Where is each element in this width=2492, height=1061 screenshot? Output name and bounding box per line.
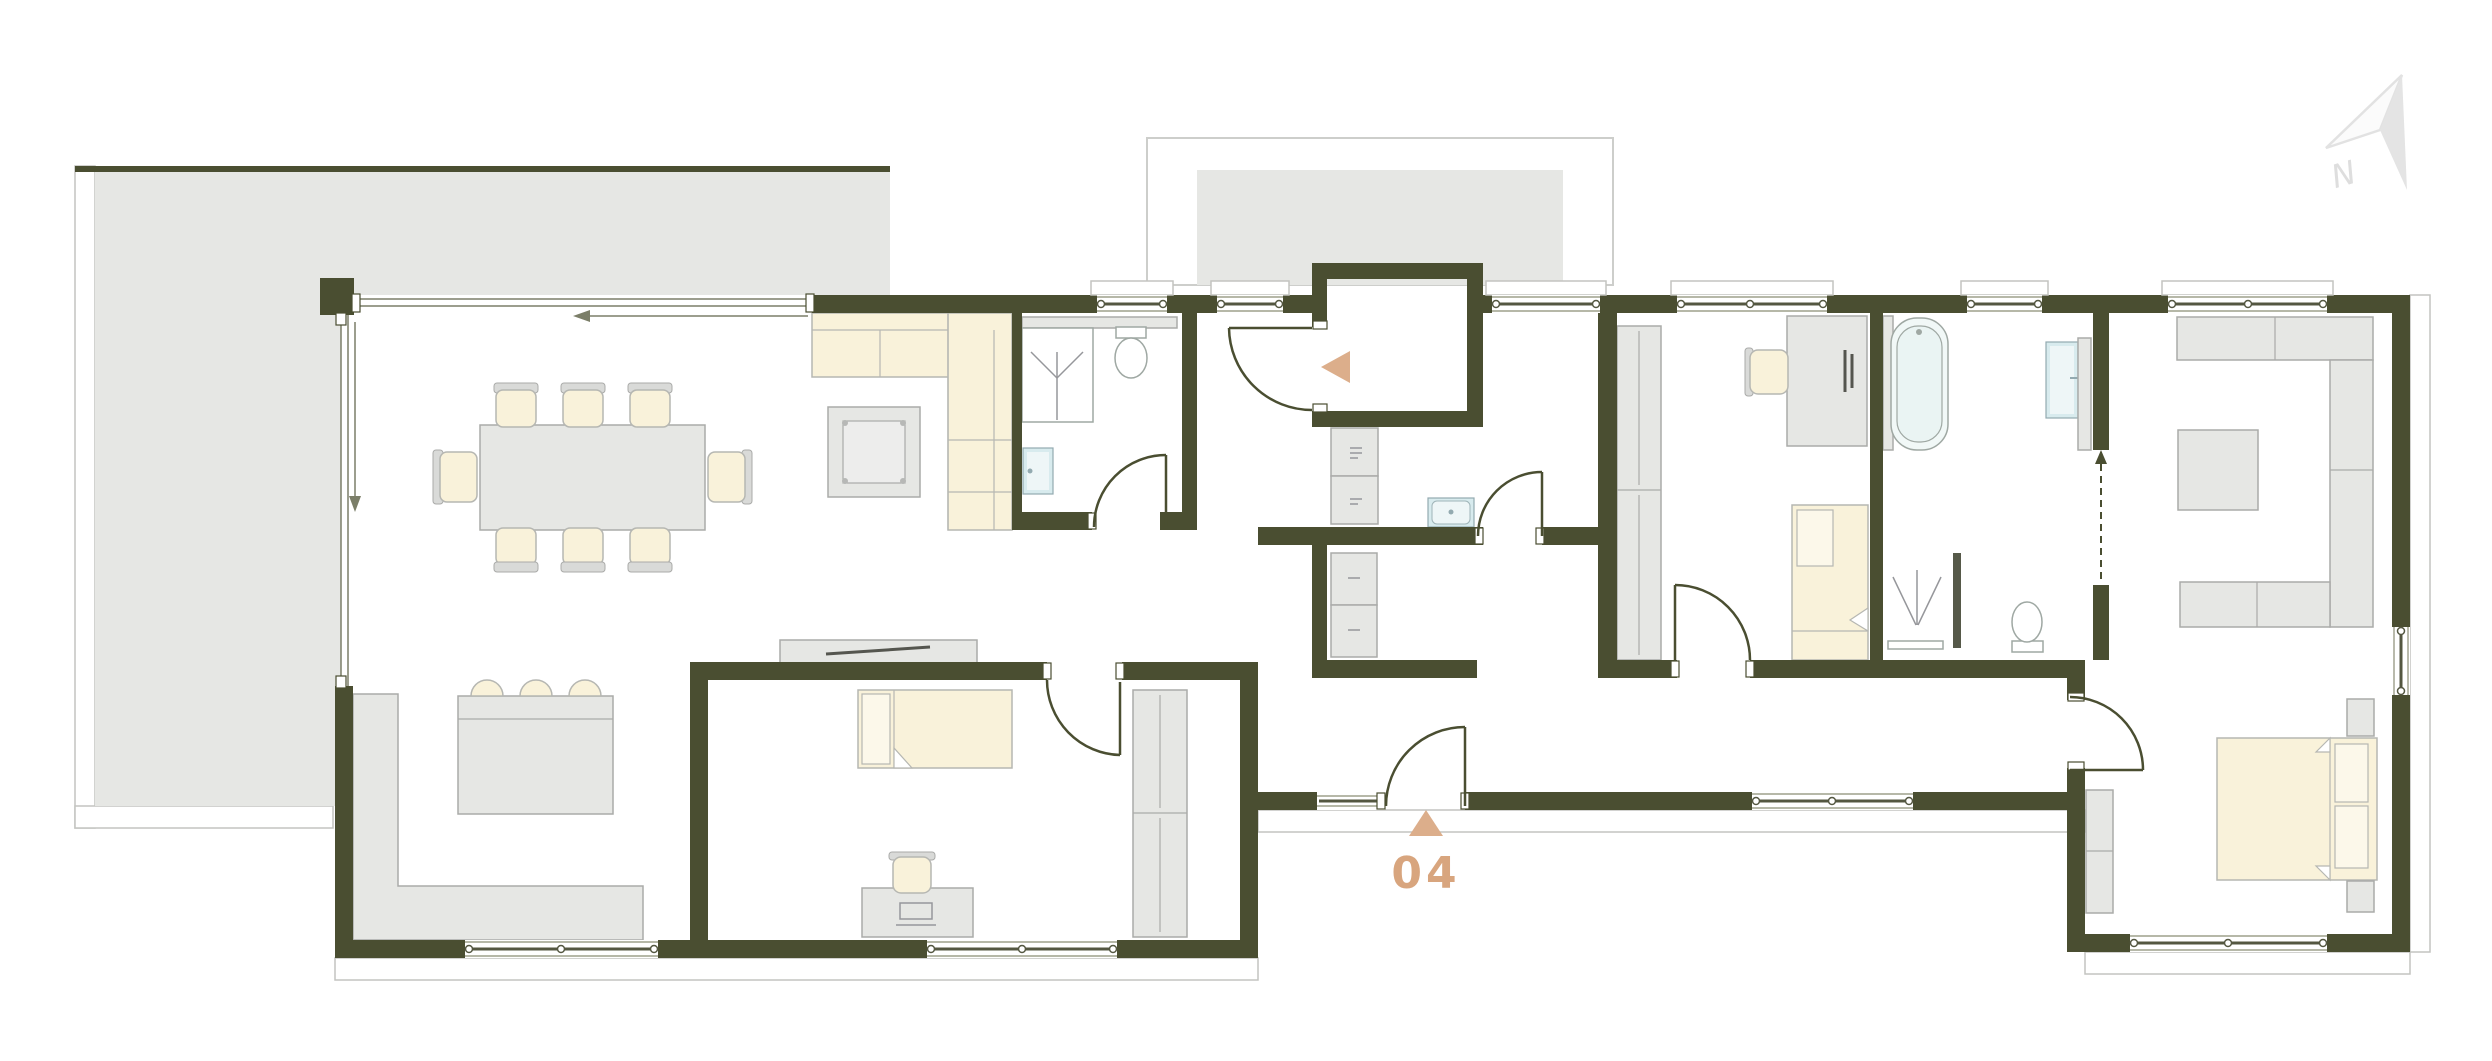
outer-sill-strip — [2085, 952, 2410, 974]
shower-room — [1022, 317, 1177, 494]
unit-number-label: 04 — [1391, 848, 1460, 899]
desk-chair — [1745, 348, 1788, 396]
bar-stool — [520, 680, 552, 696]
entrance-door — [1377, 727, 1469, 809]
door — [1671, 585, 1754, 677]
master-bedroom-suite — [2086, 317, 2377, 913]
outer-sill-strip — [335, 958, 1258, 980]
dining-chair — [628, 528, 672, 572]
window — [465, 940, 658, 958]
dining-chair — [433, 450, 477, 504]
terrace-edge-strip — [75, 166, 95, 828]
dining-chair — [561, 528, 605, 572]
desk — [1787, 316, 1867, 446]
dryer — [1331, 476, 1378, 524]
doors — [1043, 321, 2143, 809]
coffee-table — [828, 407, 920, 497]
outer-sill-strip — [1258, 810, 2085, 832]
window — [1492, 295, 1600, 313]
terrace-edge-strip — [75, 806, 333, 828]
utility-sink — [1428, 498, 1474, 527]
cabinet — [1331, 553, 1377, 657]
desk-chair — [889, 852, 935, 893]
terrace-top-edge — [75, 166, 890, 172]
dining-chair — [708, 450, 752, 504]
outer-sill-strip — [2410, 295, 2430, 952]
triangle-left-icon — [1321, 351, 1350, 383]
window — [2168, 295, 2327, 313]
vanity-counter — [2078, 338, 2091, 450]
wardrobe — [1617, 326, 1661, 660]
pillow — [862, 694, 890, 764]
living-dining-kitchen — [353, 313, 1012, 940]
shower — [1888, 553, 1961, 649]
shower-glass-partition — [1953, 553, 1961, 648]
bathroom — [1883, 316, 2107, 652]
window — [1967, 295, 2042, 313]
north-arrow: N — [2326, 75, 2407, 196]
door — [1088, 455, 1166, 529]
north-label: N — [2327, 153, 2361, 196]
pocket-door-arrow-icon — [2095, 450, 2107, 464]
bar-stool — [569, 680, 601, 696]
window — [1097, 295, 1167, 313]
kitchen-island — [458, 680, 613, 814]
door — [2068, 693, 2143, 770]
bedroom-study — [1617, 316, 1868, 660]
bar-stool — [471, 680, 503, 696]
window — [927, 940, 1117, 958]
door — [1229, 321, 1327, 412]
washer — [1331, 428, 1378, 476]
wardrobe — [2086, 790, 2113, 913]
vestibule-marker — [1321, 351, 1350, 383]
sidelight-window — [1317, 792, 1385, 810]
dining-chair — [494, 383, 538, 427]
door — [1043, 663, 1124, 755]
single-bed — [1792, 505, 1868, 660]
glass-wall-top — [352, 294, 814, 322]
dining-chair — [494, 528, 538, 572]
desk — [862, 888, 973, 937]
window — [1677, 295, 1827, 313]
washbasin — [1023, 448, 1053, 494]
bedroom-middle — [858, 690, 1187, 937]
dining-chair — [561, 383, 605, 427]
dining-table — [433, 383, 752, 572]
slider-arrow-icon — [349, 496, 361, 512]
porch — [1147, 138, 1613, 285]
window — [2392, 627, 2410, 695]
nightstand — [2347, 699, 2374, 736]
window — [1217, 295, 1283, 313]
toilet — [1115, 327, 1147, 378]
window — [2130, 934, 2327, 952]
shelf-ledge — [1022, 317, 1177, 328]
pillow — [2335, 806, 2368, 868]
nightstand — [2347, 881, 2374, 912]
bathtub — [1891, 318, 1948, 450]
window — [1752, 792, 1913, 810]
shower — [1022, 328, 1093, 422]
slider-arrow-icon — [573, 310, 590, 322]
dining-chair — [628, 383, 672, 427]
ottoman — [2178, 430, 2258, 510]
single-bed — [858, 690, 1012, 768]
double-bed — [2217, 738, 2377, 880]
door — [1475, 472, 1544, 544]
pillow — [1797, 510, 1833, 566]
floor-plan-canvas: 04 N — [0, 0, 2492, 1061]
washbasin — [2046, 342, 2078, 418]
pillow — [2335, 744, 2368, 802]
toilet — [2012, 602, 2043, 652]
wardrobe — [1133, 690, 1187, 937]
